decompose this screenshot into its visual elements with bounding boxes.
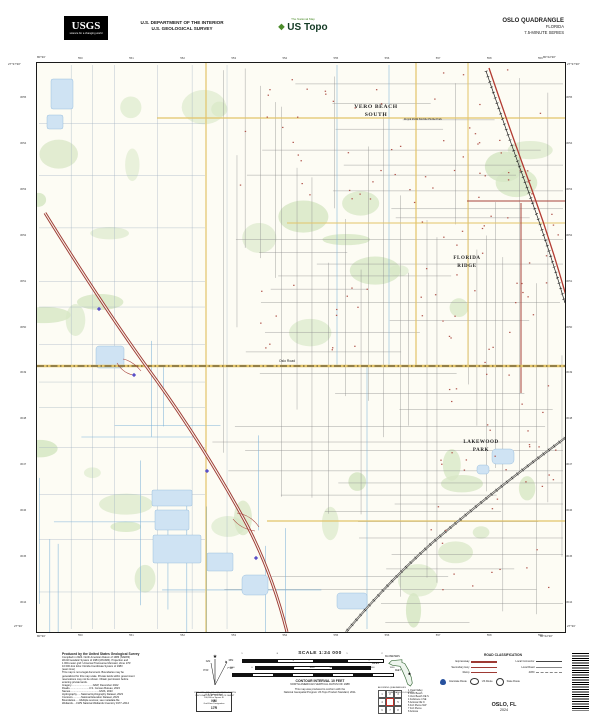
place-label-royal-palm: Royal Palm Mobile Home Park [404, 117, 442, 121]
usng-zone: 17R [197, 706, 231, 710]
credits-sources: Imagery..............................NAI… [62, 684, 182, 706]
ustopo-brand: ◆ US Topo [268, 21, 338, 33]
road-classification: ROAD CLASSIFICATION ExpresswayLocal Conn… [440, 653, 566, 686]
lake [152, 490, 192, 506]
road-classification-title: ROAD CLASSIFICATION [440, 653, 566, 657]
quad-series: 7.5-MINUTE SERIES [502, 30, 564, 36]
credits-body: Compiled in 2024. North American Datum o… [62, 656, 182, 684]
corner-ne-lon: 80°22'30" [543, 55, 556, 59]
grid-north-value: 0°21' [203, 668, 209, 672]
grid-north-label: GN [206, 659, 211, 663]
sheet-title-block: OSLO, FL 2024 [468, 702, 540, 712]
interstate-route-label: Interstate Route [449, 680, 467, 683]
corner-nw-lon: 80°30' [37, 55, 45, 59]
sheet-year: 2024 [468, 708, 540, 712]
adjoining-list: 1 Quail Valley2 Vero Beach3 Vero Beach O… [408, 689, 460, 713]
road-classification-rows: ExpresswayLocal ConnectorSecondary HwyLo… [440, 659, 566, 676]
quad-location-marker [409, 673, 411, 675]
usng-box: U.S. National Grid 100,000-m Square ID N… [196, 692, 232, 712]
place-label-lakewood-park-2: PARK [473, 448, 489, 453]
state-route-shield-icon [496, 678, 504, 686]
ustopo-logo: The National Map ◆ US Topo [268, 17, 338, 33]
topo-map-canvas: VERO BEACH SOUTH Royal Palm Mobile Home … [37, 63, 565, 632]
scale-bar-miles: 1.501MILES [232, 663, 408, 670]
adjoining-caption: ADJOINING QUADRANGLES [378, 687, 406, 689]
lake [51, 79, 73, 109]
true-north-star-icon: ★ [213, 654, 218, 660]
place-label-florida-ridge-1: FLORIDA [453, 256, 480, 261]
usgs-logo-text: USGS [72, 21, 101, 32]
place-label-vero-beach-south-2: SOUTH [365, 112, 388, 118]
route-shields: Interstate Route US Route State Route [440, 678, 566, 686]
vertical-datum: NORTH AMERICAN VERTICAL DATUM OF 1988 [232, 683, 408, 686]
lake [207, 553, 233, 571]
dept-line2: U.S. GEOLOGICAL SURVEY [112, 26, 252, 32]
lake [242, 575, 268, 595]
scale-bar-feet: 100001000200030004000500060007000FEET [232, 670, 408, 677]
lake [47, 115, 63, 129]
florida-outline [386, 655, 416, 687]
lake [337, 593, 367, 609]
us-route-shield-icon [470, 678, 479, 685]
corner-nw-lat: 27°37'30" [8, 62, 21, 66]
quad-heading: OSLO QUADRANGLE FLORIDA 7.5-MINUTE SERIE… [502, 18, 564, 36]
production-credits: Produced by the United States Geological… [62, 652, 182, 706]
corner-ne-lat: 27°37'30" [567, 62, 580, 66]
corner-se-lat: 27°30' [567, 624, 575, 628]
ustopo-pinwheel-icon: ◆ [278, 22, 284, 31]
map-area: VERO BEACH SOUTH Royal Palm Mobile Home … [36, 62, 566, 633]
lake [96, 346, 124, 368]
usgs-topo-sheet: USGS science for a changing world U.S. D… [0, 0, 600, 725]
scale-bar-kilometers: 1.5012KILOMETERS [232, 656, 408, 663]
department-heading: U.S. DEPARTMENT OF THE INTERIOR U.S. GEO… [112, 20, 252, 32]
corner-sw-lon: 80°30' [37, 634, 45, 638]
lake [477, 465, 489, 474]
place-label-florida-ridge-2: RIDGE [457, 264, 476, 269]
adjoining-quadrangles: ADJOINING QUADRANGLES 12345678 [378, 687, 406, 714]
place-label-vero-beach-south-1: VERO BEACH [354, 104, 398, 110]
barcode [572, 653, 589, 711]
adjoining-grid: 12345678 [378, 690, 406, 714]
lake [153, 535, 201, 563]
lake [155, 510, 189, 530]
us-route-label: US Route [482, 680, 493, 683]
road-label-oslo-road: Oslo Road [279, 359, 295, 363]
usgs-tagline: science for a changing world [70, 32, 103, 35]
usgs-logo: USGS science for a changing world [64, 16, 108, 40]
state-route-label: State Route [507, 680, 520, 683]
interstate-shield-icon [440, 679, 446, 685]
place-label-lakewood-park-1: LAKEWOOD [463, 440, 498, 445]
corner-sw-lat: 27°30' [14, 624, 22, 628]
